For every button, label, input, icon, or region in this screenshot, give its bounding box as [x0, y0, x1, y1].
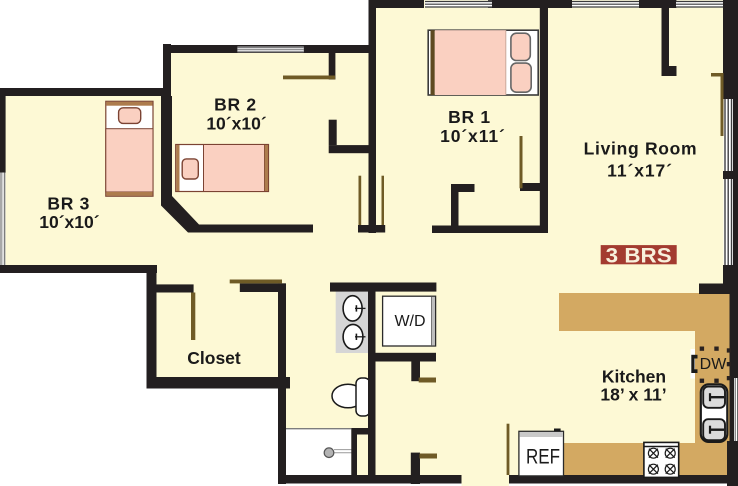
svg-text:REF: REF: [526, 445, 560, 468]
svg-text:10´x10´: 10´x10´: [206, 114, 266, 134]
svg-text:10´x10´: 10´x10´: [39, 212, 99, 232]
svg-text:Living Room: Living Room: [584, 139, 698, 159]
svg-text:DW: DW: [700, 356, 728, 373]
svg-text:BR 3: BR 3: [47, 193, 90, 213]
svg-text:W/D: W/D: [394, 313, 425, 330]
svg-text:10´x11´: 10´x11´: [440, 126, 506, 146]
svg-text:Closet: Closet: [187, 348, 241, 368]
svg-text:BR 1: BR 1: [448, 107, 491, 127]
svg-text:18’ x 11’: 18’ x 11’: [600, 384, 666, 404]
svg-text:11´x17´: 11´x17´: [607, 160, 673, 180]
svg-text:3 BRS: 3 BRS: [606, 243, 672, 267]
svg-text:BR 2: BR 2: [214, 95, 257, 115]
